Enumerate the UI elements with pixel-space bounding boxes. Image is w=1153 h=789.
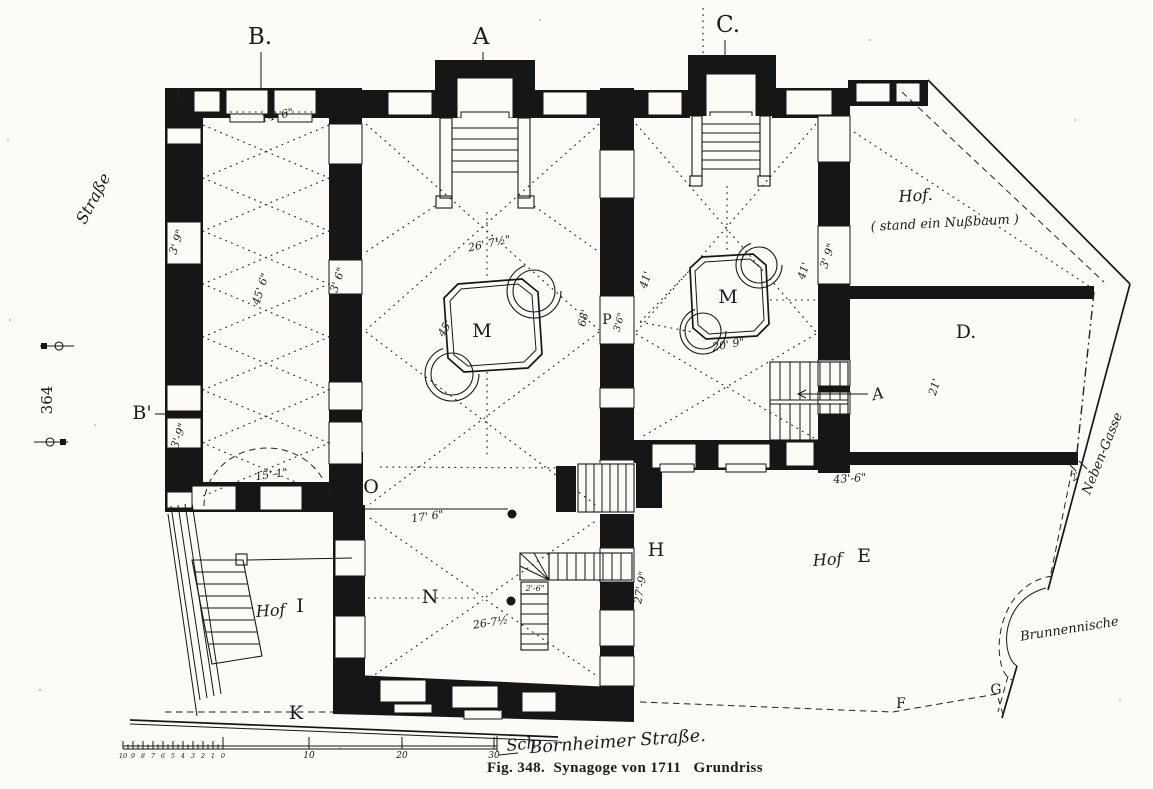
label-marker-n: N (422, 586, 439, 608)
stair-entrance-c (690, 116, 772, 188)
label-section-marker-a: A (472, 24, 490, 50)
scale-number: 5 (171, 752, 175, 760)
scale-number: 6 (161, 752, 165, 760)
scale-number: 4 (180, 752, 185, 760)
label-hof-e-script: Hof (811, 549, 846, 570)
scan-page: 364 109876543210102030 Sch B.AC.B'LONHKF… (0, 0, 1153, 789)
scale-number: 1 (211, 752, 215, 760)
scale-number: 8 (141, 752, 145, 760)
label-hof-i-script: Hof (254, 600, 289, 621)
scale-number: 3 (191, 752, 195, 760)
floorplan-svg: 364 109876543210102030 Sch B.AC.B'LONHKF… (0, 0, 1153, 789)
label-hof-e-letter: E (857, 545, 871, 567)
label-marker-f: F (896, 696, 906, 712)
label-marker-o: O (363, 476, 379, 498)
label-door-p: P (602, 312, 611, 328)
page-number: 364 (38, 386, 56, 415)
scale-number: 0 (221, 752, 225, 760)
label-dim-2-6: 2'-6" (525, 584, 545, 593)
label-dim-43-6: 43'-6" (832, 471, 867, 486)
label-marker-k: K (289, 702, 304, 724)
label-section-marker-b-prime: B' (132, 402, 151, 424)
label-marker-g: G (990, 682, 1001, 698)
scale-number: 10 (119, 752, 127, 760)
scale-number: 10 (303, 751, 315, 761)
label-marker-l: L (175, 87, 184, 103)
scale-number: 9 (131, 752, 135, 760)
label-bimah-m-women: M (718, 286, 737, 308)
scale-number: 2 (200, 752, 205, 760)
label-section-marker-c: C. (716, 12, 740, 38)
label-marker-h: H (648, 539, 665, 561)
stair-main-south (576, 463, 636, 514)
label-section-marker-b: B. (248, 24, 272, 50)
label-room-d: D. (956, 321, 977, 343)
label-hof-i-letter: I (296, 595, 304, 617)
label-hof-top-script: Hof. (897, 185, 933, 206)
scale-number: 20 (395, 751, 408, 761)
figure-caption: Fig. 348. Synagoge von 1711 Grundriss (487, 760, 763, 776)
label-bimah-m-main: M (472, 320, 491, 342)
